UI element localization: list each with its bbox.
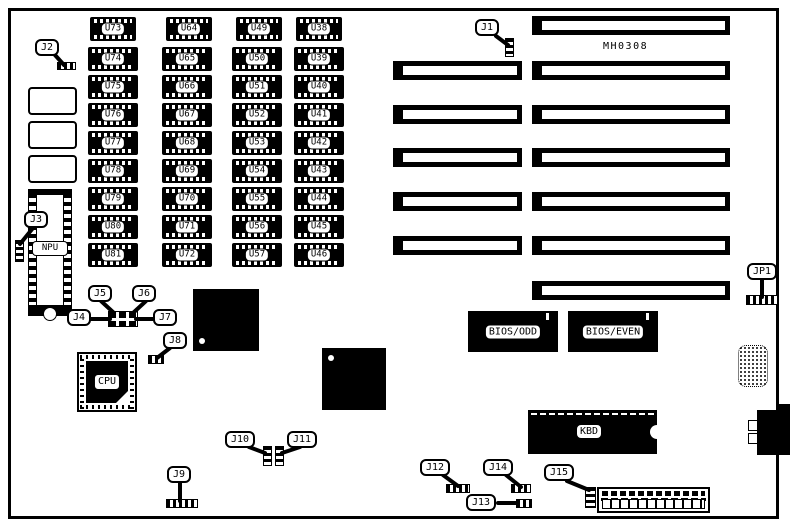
expansion-slot-long	[532, 236, 730, 255]
memory-chip-label: U77	[101, 137, 125, 150]
jumper-j2	[57, 62, 76, 70]
memory-chip-label: U66	[175, 81, 199, 94]
socket-pins	[531, 413, 654, 415]
memory-chip: U42	[294, 131, 344, 155]
memory-chip: U81	[88, 243, 138, 267]
memory-chip: U53	[232, 131, 282, 155]
memory-chip: U54	[232, 159, 282, 183]
memory-chip-label: U70	[175, 193, 199, 206]
jumper-j10	[263, 446, 272, 466]
socket-notch	[43, 307, 57, 321]
jumper-j13	[516, 499, 532, 508]
memory-chip: U71	[162, 215, 212, 239]
socket-notch	[650, 425, 664, 439]
jumper-callout-j15: J15	[544, 464, 574, 481]
kbd-label: KBD	[576, 424, 602, 439]
bios-even-label: BIOS/EVEN	[582, 324, 644, 339]
motherboard-diagram: MH0308 U73 U74 U75 U76 U77 U78 U79 U80 U…	[0, 0, 791, 527]
jumper-j15	[585, 487, 596, 508]
memory-chip-label: U72	[175, 249, 199, 262]
memory-chip-label: U50	[245, 53, 269, 66]
memory-chip: U79	[88, 187, 138, 211]
memory-chip-label: U78	[101, 165, 125, 178]
expansion-slot-long	[532, 281, 730, 300]
memory-chip: U65	[162, 47, 212, 71]
memory-chip-label: U71	[175, 221, 199, 234]
jumper-jp1	[746, 295, 778, 305]
bios-odd-chip: BIOS/ODD	[468, 311, 558, 352]
memory-chip-label: U75	[101, 81, 125, 94]
keyboard-connector	[757, 410, 790, 455]
pin1-mark	[646, 313, 649, 320]
pin1-dot	[199, 338, 205, 344]
component-box	[28, 155, 77, 183]
jumper-j3	[15, 240, 24, 262]
memory-chip-label: U49	[247, 23, 271, 36]
memory-chip-label: U52	[245, 109, 269, 122]
jumper-callout-j13: J13	[466, 494, 496, 511]
jumper-j8	[148, 355, 164, 364]
expansion-slot-long	[532, 148, 730, 167]
memory-chip: U45	[294, 215, 344, 239]
capacitor	[738, 345, 768, 387]
jumper-j1	[505, 38, 514, 57]
power-connector	[597, 487, 710, 513]
memory-chip-label: U42	[307, 137, 331, 150]
jumper-j11	[275, 446, 284, 466]
expansion-slot-long	[532, 192, 730, 211]
connector-pins	[602, 499, 705, 509]
jumper-callout-j3: J3	[24, 211, 48, 228]
memory-chip: U40	[294, 75, 344, 99]
memory-chip-label: U45	[307, 221, 331, 234]
bios-even-chip: BIOS/EVEN	[568, 311, 658, 352]
jumper-callout-j10: J10	[225, 431, 255, 448]
memory-chip-label: U65	[175, 53, 199, 66]
memory-chip: U43	[294, 159, 344, 183]
memory-chip-label: U43	[307, 165, 331, 178]
socket-cap	[29, 190, 71, 195]
memory-chip-label: U68	[175, 137, 199, 150]
cpu-label: CPU	[94, 374, 120, 390]
memory-chip-label: U54	[245, 165, 269, 178]
jumper-callout-j11: J11	[287, 431, 317, 448]
memory-chip: U75	[88, 75, 138, 99]
memory-chip: U68	[162, 131, 212, 155]
memory-chip-label: U46	[307, 249, 331, 262]
jumper-callout-j2: J2	[35, 39, 59, 56]
jumper-callout-j1: J1	[475, 19, 499, 36]
memory-chip-label: U76	[101, 109, 125, 122]
memory-chip: U44	[294, 187, 344, 211]
connector-step	[777, 404, 790, 410]
expansion-slot-short	[393, 148, 522, 167]
expansion-slot-long	[532, 105, 730, 124]
expansion-slot-long	[532, 61, 730, 80]
qfp-chip	[193, 289, 259, 351]
cpu-socket: CPU	[77, 352, 137, 412]
memory-chip: U49	[236, 17, 282, 41]
memory-chip-label: U67	[175, 109, 199, 122]
expansion-slot-short	[393, 236, 522, 255]
memory-chip-label: U73	[101, 23, 125, 36]
memory-chip: U77	[88, 131, 138, 155]
jumper-callout-j8: J8	[163, 332, 187, 349]
board-part-number: MH0308	[603, 41, 648, 52]
memory-chip: U76	[88, 103, 138, 127]
jumper-block-j4-j7	[108, 311, 138, 327]
kbd-chip: KBD	[528, 410, 657, 454]
memory-chip: U56	[232, 215, 282, 239]
jumper-callout-j12: J12	[420, 459, 450, 476]
component-box	[28, 121, 77, 149]
jumper-j12	[446, 484, 470, 493]
memory-chip-label: U51	[245, 81, 269, 94]
jumper-callout-j9: J9	[167, 466, 191, 483]
memory-chip: U41	[294, 103, 344, 127]
header-j9	[166, 499, 198, 508]
memory-chip: U67	[162, 103, 212, 127]
bios-odd-label: BIOS/ODD	[485, 324, 541, 339]
connector-tabs	[602, 491, 705, 496]
memory-chip: U38	[296, 17, 342, 41]
memory-chip-label: U40	[307, 81, 331, 94]
memory-chip-label: U80	[101, 221, 125, 234]
memory-chip: U50	[232, 47, 282, 71]
memory-chip-label: U57	[245, 249, 269, 262]
expansion-slot-long	[532, 16, 730, 35]
jumper-j14	[511, 484, 531, 493]
memory-chip-label: U53	[245, 137, 269, 150]
jumper-callout-j5: J5	[88, 285, 112, 302]
expansion-slot-short	[393, 192, 522, 211]
memory-chip-label: U74	[101, 53, 125, 66]
memory-chip-label: U64	[177, 23, 201, 36]
pin1-dot	[328, 355, 334, 361]
pin1-mark	[546, 313, 549, 320]
memory-chip: U72	[162, 243, 212, 267]
memory-chip: U39	[294, 47, 344, 71]
memory-chip: U69	[162, 159, 212, 183]
memory-chip-label: U39	[307, 53, 331, 66]
qfp-chip	[322, 348, 386, 410]
memory-chip-label: U56	[245, 221, 269, 234]
expansion-slot-short	[393, 61, 522, 80]
connector-pin	[748, 433, 758, 444]
memory-chip: U64	[166, 17, 212, 41]
memory-chip-label: U44	[307, 193, 331, 206]
jumper-callout-j14: J14	[483, 459, 513, 476]
memory-chip-label: U81	[101, 249, 125, 262]
memory-chip: U51	[232, 75, 282, 99]
memory-chip-label: U55	[245, 193, 269, 206]
memory-chip: U73	[90, 17, 136, 41]
jumper-callout-j7: J7	[153, 309, 177, 326]
memory-chip: U66	[162, 75, 212, 99]
jumper-callout-j4: J4	[67, 309, 91, 326]
jumper-callout-jp1: JP1	[747, 263, 777, 280]
memory-chip: U52	[232, 103, 282, 127]
memory-chip: U74	[88, 47, 138, 71]
expansion-slot-short	[393, 105, 522, 124]
memory-chip: U46	[294, 243, 344, 267]
memory-chip: U70	[162, 187, 212, 211]
memory-chip: U55	[232, 187, 282, 211]
memory-chip-label: U69	[175, 165, 199, 178]
npu-socket: NPU	[28, 189, 72, 316]
memory-chip: U80	[88, 215, 138, 239]
memory-chip: U78	[88, 159, 138, 183]
memory-chip-label: U38	[307, 23, 331, 36]
connector-pin	[748, 420, 758, 431]
memory-chip: U57	[232, 243, 282, 267]
memory-chip-label: U79	[101, 193, 125, 206]
memory-chip-label: U41	[307, 109, 331, 122]
component-box	[28, 87, 77, 115]
npu-label: NPU	[32, 241, 68, 256]
jumper-callout-j6: J6	[132, 285, 156, 302]
